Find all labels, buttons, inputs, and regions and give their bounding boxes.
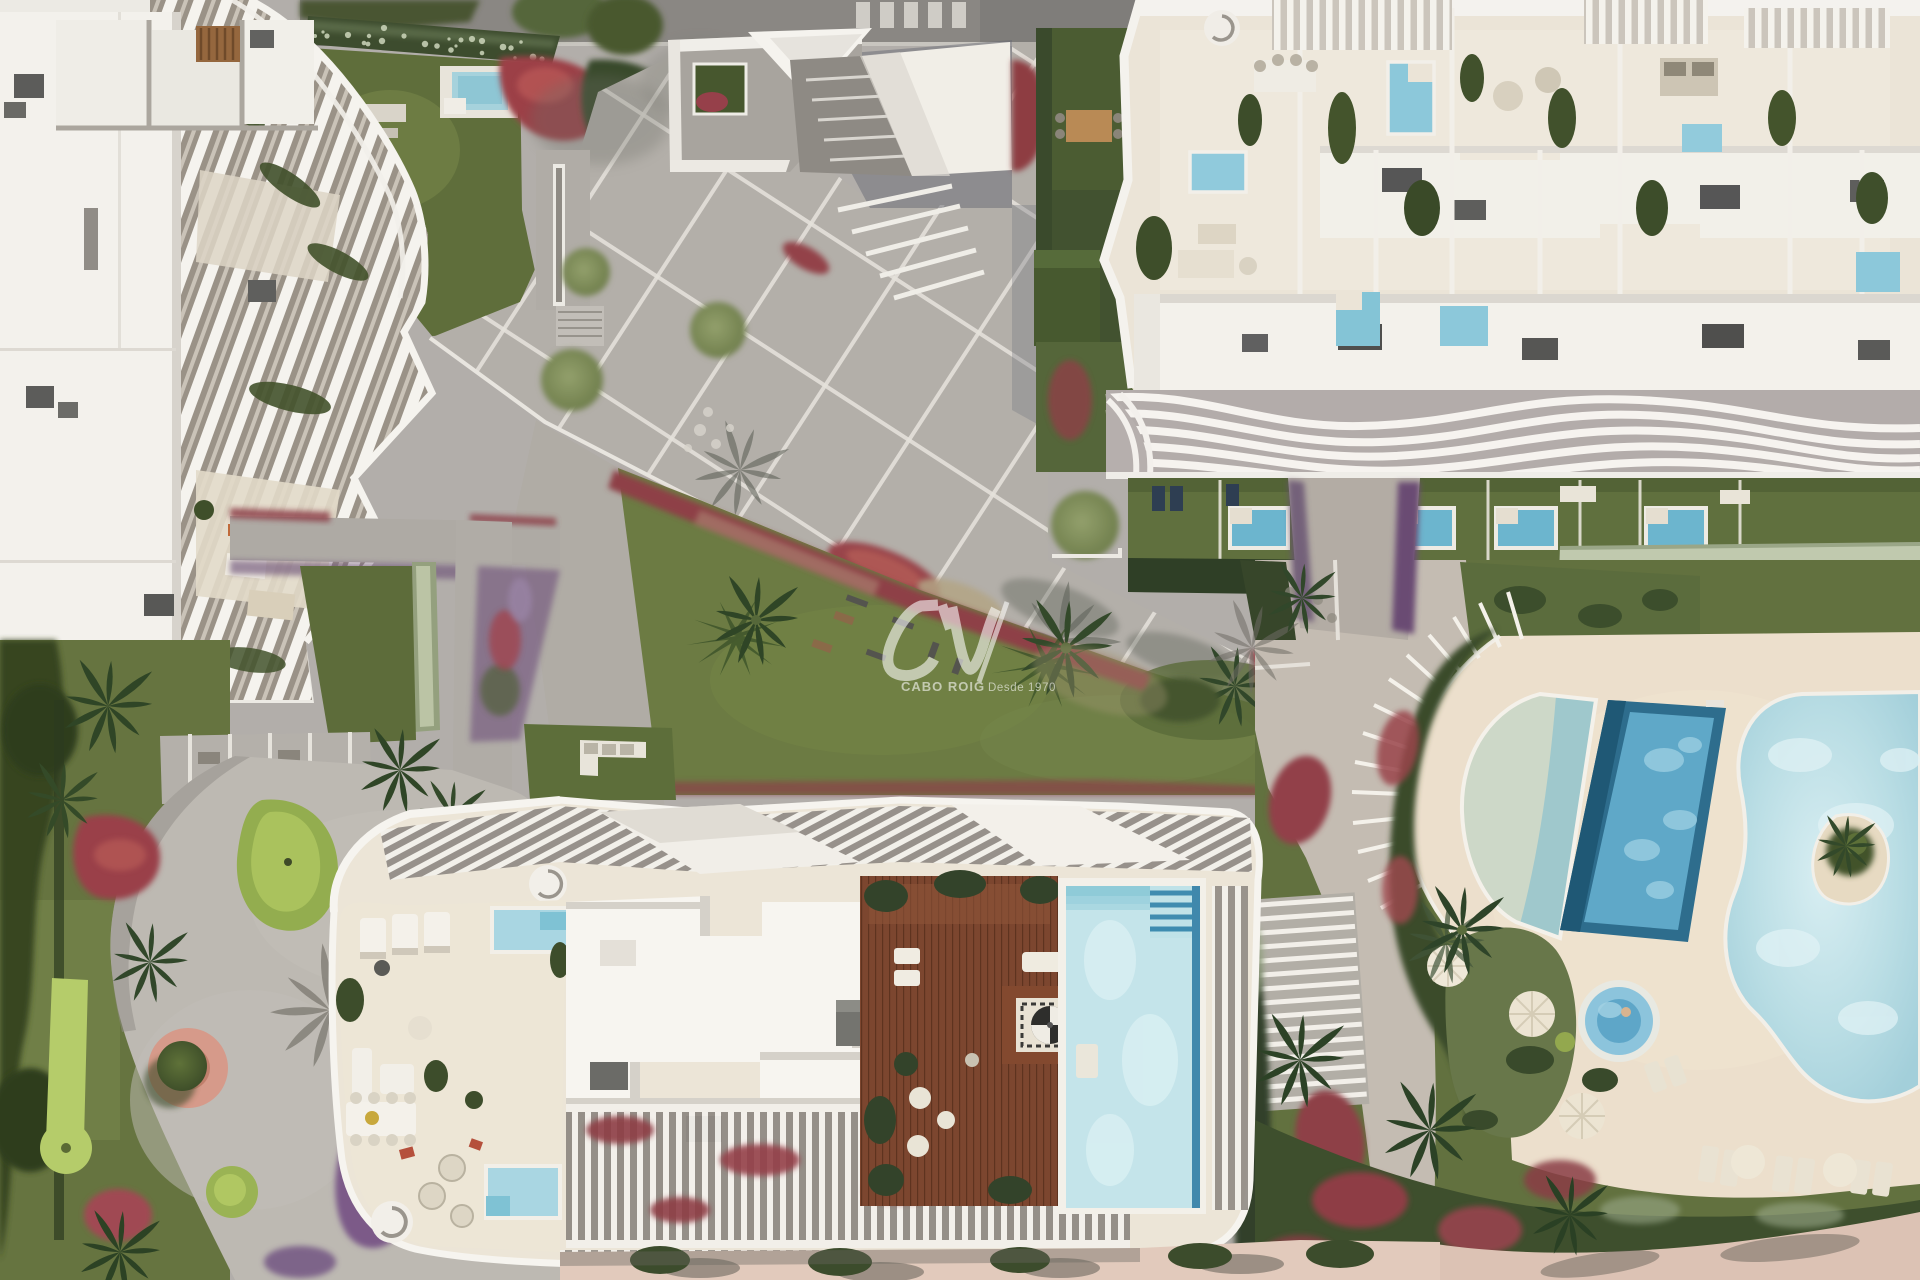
svg-text:CABO ROIG: CABO ROIG [901, 679, 985, 694]
svg-text:Desde 1970: Desde 1970 [988, 682, 1056, 694]
